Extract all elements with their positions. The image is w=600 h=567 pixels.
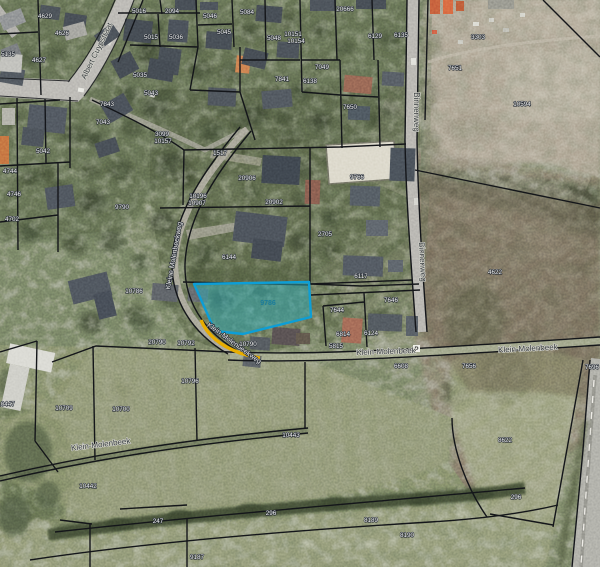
svg-text:2705: 2705 — [318, 231, 333, 238]
svg-text:5015: 5015 — [144, 34, 159, 41]
svg-text:9790: 9790 — [115, 204, 130, 211]
svg-text:7650: 7650 — [343, 104, 358, 111]
svg-text:2094: 2094 — [165, 8, 180, 15]
svg-text:5016: 5016 — [132, 8, 147, 15]
svg-text:4746: 4746 — [7, 191, 22, 198]
svg-text:3303: 3303 — [471, 34, 486, 41]
svg-text:10907: 10907 — [188, 200, 206, 207]
svg-text:6144: 6144 — [222, 254, 237, 261]
svg-text:296: 296 — [266, 510, 277, 517]
svg-text:10786: 10786 — [125, 288, 143, 295]
svg-text:7656: 7656 — [462, 363, 477, 370]
svg-text:5046: 5046 — [203, 13, 218, 20]
svg-text:10709: 10709 — [55, 405, 73, 412]
svg-text:3099: 3099 — [155, 131, 170, 138]
svg-text:10157: 10157 — [154, 138, 172, 145]
svg-text:6129: 6129 — [368, 33, 383, 40]
svg-text:10154: 10154 — [287, 38, 305, 45]
svg-text:296: 296 — [511, 494, 522, 501]
svg-text:5048: 5048 — [267, 35, 282, 42]
svg-text:5042: 5042 — [36, 148, 51, 155]
svg-text:6608: 6608 — [394, 363, 409, 370]
svg-text:10447: 10447 — [0, 401, 15, 408]
svg-text:10196: 10196 — [189, 193, 207, 200]
svg-text:4622: 4622 — [488, 269, 503, 276]
svg-text:4627: 4627 — [32, 57, 47, 64]
svg-text:4702: 4702 — [5, 216, 20, 223]
svg-text:5815: 5815 — [329, 343, 344, 350]
svg-text:5043: 5043 — [144, 90, 159, 97]
svg-text:5036: 5036 — [169, 34, 184, 41]
svg-text:4626: 4626 — [55, 30, 70, 37]
svg-text:20902: 20902 — [265, 199, 283, 206]
svg-text:10796: 10796 — [181, 378, 199, 385]
svg-text:20790: 20790 — [148, 339, 166, 346]
svg-text:4629: 4629 — [38, 13, 53, 20]
svg-text:9786: 9786 — [260, 300, 276, 307]
svg-text:10790: 10790 — [239, 341, 257, 348]
svg-text:7841: 7841 — [275, 76, 290, 83]
svg-text:20666: 20666 — [336, 6, 354, 13]
svg-text:9187: 9187 — [190, 554, 205, 561]
svg-text:6814: 6814 — [336, 331, 351, 338]
svg-text:10792: 10792 — [177, 340, 195, 347]
svg-text:Binnenweg: Binnenweg — [412, 92, 421, 132]
svg-text:10700: 10700 — [112, 406, 130, 413]
svg-text:7696: 7696 — [585, 364, 600, 371]
svg-text:8190: 8190 — [400, 532, 415, 539]
svg-text:6138: 6138 — [303, 78, 318, 85]
svg-text:7843: 7843 — [100, 101, 115, 108]
svg-text:6117: 6117 — [354, 273, 368, 280]
svg-text:5084: 5084 — [240, 9, 255, 16]
svg-text:6124: 6124 — [364, 330, 379, 337]
svg-text:8189: 8189 — [364, 517, 379, 524]
svg-text:5135: 5135 — [1, 51, 16, 58]
svg-text:9766: 9766 — [350, 174, 365, 181]
svg-text:7049: 7049 — [315, 64, 330, 71]
svg-text:4744: 4744 — [3, 168, 18, 175]
svg-text:10443: 10443 — [282, 432, 300, 439]
svg-text:20906: 20906 — [238, 175, 256, 182]
svg-text:5045: 5045 — [217, 29, 232, 36]
svg-text:10151: 10151 — [284, 31, 302, 38]
svg-text:10594: 10594 — [513, 101, 531, 108]
svg-text:7651: 7651 — [448, 65, 463, 72]
svg-text:6135: 6135 — [394, 32, 409, 39]
svg-text:5035: 5035 — [133, 72, 148, 79]
svg-text:8622: 8622 — [498, 437, 513, 444]
svg-text:7644: 7644 — [330, 307, 345, 314]
svg-text:7043: 7043 — [96, 119, 111, 126]
svg-text:7646: 7646 — [384, 297, 399, 304]
svg-text:1517: 1517 — [213, 150, 228, 157]
svg-text:247: 247 — [153, 518, 164, 525]
svg-text:10442: 10442 — [79, 483, 97, 490]
